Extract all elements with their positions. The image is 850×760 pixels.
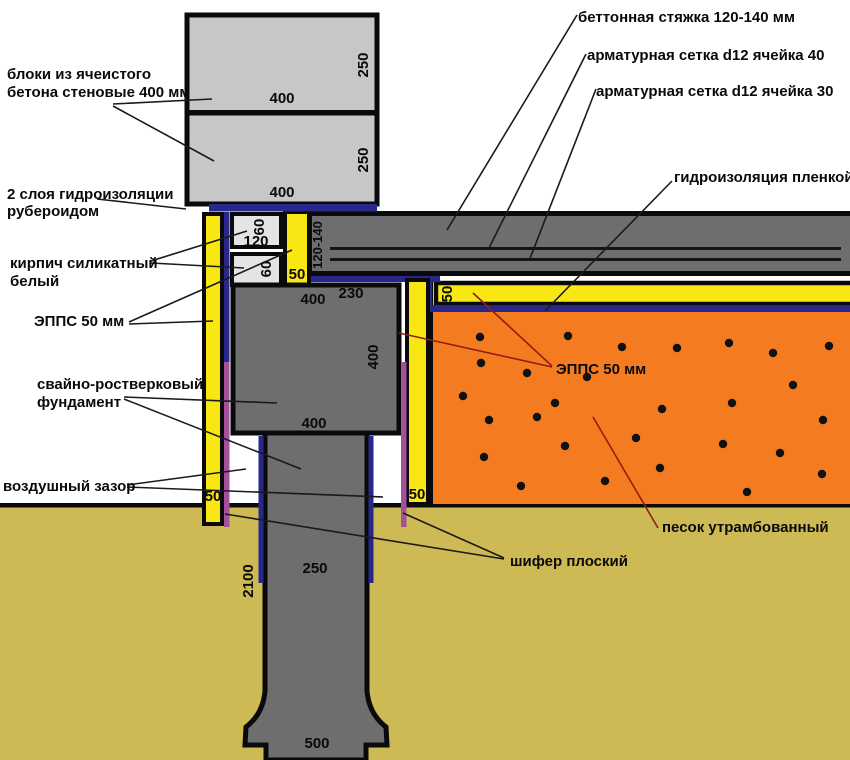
film-under-strip: [431, 305, 850, 312]
label-mesh30: арматурная сетка d12 ячейка 30: [596, 83, 834, 100]
sand-dot: [476, 333, 484, 341]
dim-block1-height: 250: [355, 52, 372, 77]
membrane-left-line: [224, 212, 230, 362]
sand-fill: [433, 308, 850, 504]
label-foundation-line2: фундамент: [37, 394, 121, 411]
label-mesh40: арматурная сетка d12 ячейка 40: [587, 47, 825, 64]
slate-right-line: [401, 362, 407, 527]
dim-grillage-bottom: 400: [301, 415, 326, 432]
soil-fill: [0, 506, 850, 760]
pile-membrane-left: [259, 436, 264, 583]
sand-dot: [485, 416, 493, 424]
sand-dot: [632, 434, 640, 442]
rebar-mesh-line-2: [330, 258, 841, 261]
label-blocks-line2: бетона стеновые 400 мм: [7, 84, 190, 101]
construction-diagram: 400 400 250 250 120 60 60 50 120-140 400…: [0, 0, 850, 760]
dim-eps-right: 50: [409, 486, 426, 503]
sand-dot: [819, 416, 827, 424]
dim-screed-height: 120-140: [310, 221, 325, 269]
eps-horizontal-strip: [431, 283, 850, 312]
label-felt-line1: 2 слоя гидроизоляции: [7, 186, 173, 203]
dim-pile-depth: 2100: [240, 564, 257, 597]
blocks-outline: [187, 15, 377, 204]
wall-blocks: [187, 15, 377, 212]
sand-dot: [719, 440, 727, 448]
label-air-gap: воздушный зазор: [3, 478, 135, 495]
felt-waterproofing-strip: [209, 204, 377, 212]
sand-dot: [523, 369, 531, 377]
leader-eps-left-2: [129, 321, 213, 324]
dim-brick1-height: 60: [251, 219, 268, 236]
sand-dot: [618, 343, 626, 351]
eps-right-fill: [407, 280, 428, 504]
dim-eps-left: 50: [205, 488, 222, 505]
label-slate: шифер плоский: [510, 553, 628, 570]
sand-zone: [426, 278, 850, 506]
dim-offset-230: 230: [338, 285, 363, 302]
pile-shape: [245, 433, 387, 760]
leader-screed: [447, 15, 577, 230]
dim-grillage-top: 400: [300, 291, 325, 308]
sand-dot: [743, 488, 751, 496]
label-foundation-line1: свайно-ростверковый: [37, 376, 203, 393]
sand-dot: [601, 477, 609, 485]
sand-dot: [517, 482, 525, 490]
sand-dot: [725, 339, 733, 347]
dim-brick2-height: 60: [258, 261, 275, 278]
label-eps-sand: ЭППС 50 мм: [556, 361, 646, 378]
diagram-canvas: 400 400 250 250 120 60 60 50 120-140 400…: [0, 0, 850, 760]
label-sand: песок утрамбованный: [662, 519, 829, 536]
eps-left-fill: [204, 214, 222, 524]
eps-left-strip: [204, 212, 230, 527]
label-screed: беттонная стяжка 120-140 мм: [578, 9, 795, 26]
dim-pile-bell: 500: [304, 735, 329, 752]
sand-dot: [818, 470, 826, 478]
sand-dot: [561, 442, 569, 450]
dim-block2-height: 250: [355, 147, 372, 172]
label-eps-left: ЭППС 50 мм: [34, 313, 124, 330]
sand-dot: [776, 449, 784, 457]
sand-dot: [658, 405, 666, 413]
slab-fill: [310, 214, 850, 274]
concrete-pile: [245, 433, 387, 760]
dim-grillage-height: 400: [365, 344, 382, 369]
label-film: гидроизоляция пленкой: [674, 169, 850, 186]
blocks-divider: [187, 110, 377, 116]
dim-eps-horizontal: 50: [439, 286, 456, 303]
sand-dot: [480, 453, 488, 461]
label-brick-line1: кирпич силикатный: [10, 255, 158, 272]
dim-pile-width: 250: [302, 560, 327, 577]
sand-dot: [477, 359, 485, 367]
dim-block1-width: 400: [269, 90, 294, 107]
label-blocks-line1: блоки из ячеистого: [7, 66, 151, 83]
sand-dot: [564, 332, 572, 340]
eps-horizontal-fill: [436, 283, 850, 304]
sand-dot: [825, 342, 833, 350]
label-brick-line2: белый: [10, 273, 59, 290]
sand-dot: [673, 344, 681, 352]
pile-membrane-right: [369, 436, 374, 583]
soil-ground: [0, 503, 850, 760]
sand-dot: [459, 392, 467, 400]
rebar-mesh-line-1: [330, 247, 841, 250]
dim-block2-width: 400: [269, 184, 294, 201]
sand-dot: [789, 381, 797, 389]
sand-dot: [656, 464, 664, 472]
label-felt-line2: рубероидом: [7, 203, 99, 220]
slate-left-line: [224, 362, 230, 527]
dim-eps-brick: 50: [289, 266, 306, 283]
sand-dot: [769, 349, 777, 357]
sand-dot: [728, 399, 736, 407]
sand-dot: [533, 413, 541, 421]
sand-dot: [551, 399, 559, 407]
